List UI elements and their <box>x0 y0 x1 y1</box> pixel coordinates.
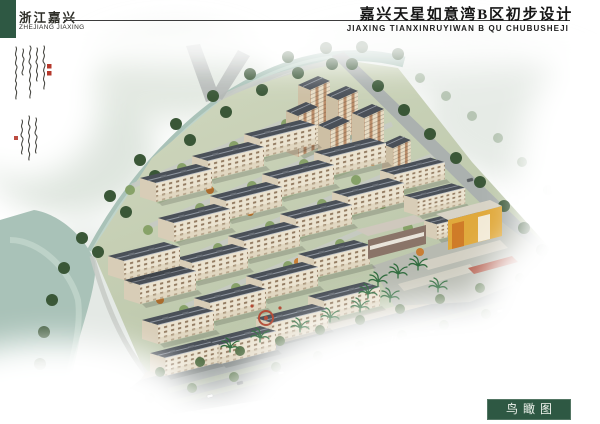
presentation-board: 浙江嘉兴 ZHEJIANG JIAXING 嘉兴天星如意湾B区初步设计 JIAX… <box>0 0 600 424</box>
title-block-corner-mark <box>0 0 16 38</box>
project-title-pinyin: JIAXING TIANXINRUYIWAN B QU CHUBUSHEJI <box>347 24 569 33</box>
drawing-caption: 鸟瞰图 <box>487 399 571 420</box>
calligraphy-inscription <box>2 40 60 180</box>
project-title: 嘉兴天星如意湾B区初步设计 <box>360 3 573 24</box>
region-subtitle: ZHEJIANG JIAXING <box>19 24 85 31</box>
seal-stamps <box>14 64 52 140</box>
aerial-rendering <box>0 0 600 424</box>
